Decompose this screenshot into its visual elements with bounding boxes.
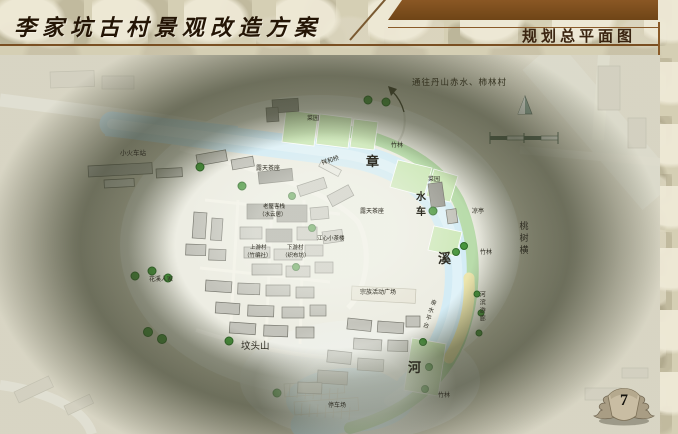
map-drawing-layer: [0, 55, 660, 434]
north-arrow-icon: [518, 96, 532, 114]
slide: { "header": { "title": "李家坑古村景观改造方案", "s…: [0, 0, 678, 434]
header-banner: [388, 0, 658, 20]
page-number: 7: [586, 392, 662, 410]
section-title: 规划总平面图: [388, 27, 636, 44]
page-number-emblem: 7: [586, 378, 662, 426]
header-rule-under: [0, 44, 658, 46]
page-title: 李家坑古村景观改造方案: [14, 10, 384, 42]
clan-plaza: [351, 286, 416, 303]
direction-note: 通往丹山赤水、柿林村: [412, 76, 507, 88]
scale-bar-icon: [490, 132, 558, 144]
site-plan-map: [0, 55, 660, 434]
